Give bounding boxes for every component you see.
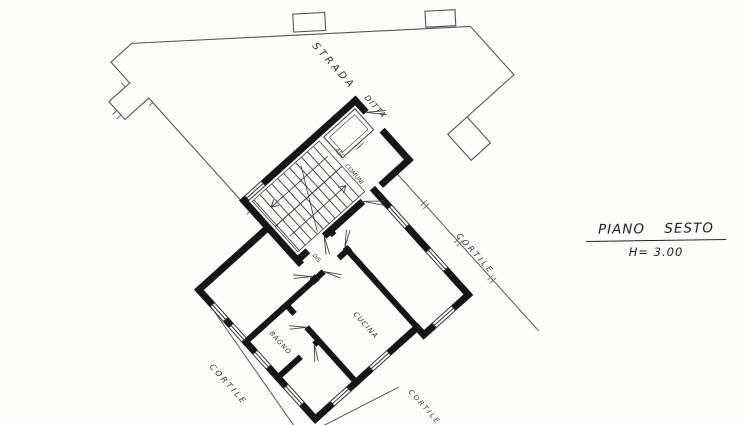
- hallway-label: DIS.: [311, 253, 323, 265]
- drawing-sheet: STRADA DITTA ASC. COMUNI DIS. BAGNO CUCI…: [0, 0, 750, 425]
- stair-arrow-up: [269, 153, 331, 210]
- ceiling-height-note: H= 3.00: [586, 245, 726, 259]
- elevator: [324, 109, 376, 160]
- courtyard-west-label: CORTILE: [208, 362, 249, 406]
- bathroom-label: BAGNO: [268, 329, 293, 356]
- facade-balcony-1: [293, 12, 326, 32]
- balcony-ticks: [96, 71, 250, 236]
- stair-core-walls: [239, 95, 431, 284]
- kitchen-label: CUCINA: [352, 310, 380, 340]
- title-block: PIANO SESTO H= 3.00: [586, 221, 726, 259]
- apartment-walls: [194, 153, 473, 425]
- courtyard-south-label: CORTILE: [407, 388, 442, 425]
- balcony-east: [448, 117, 491, 160]
- street-label: STRADA: [310, 41, 358, 92]
- facade-balcony-2: [425, 10, 456, 28]
- staircase: [252, 141, 364, 252]
- courtyard-east-label: CORTILE: [455, 231, 496, 275]
- courtyard-lines: [189, 144, 541, 425]
- plan-title: PIANO SESTO: [586, 220, 726, 242]
- owner-label: DITTA: [362, 93, 387, 120]
- floor-plan-drawing: STRADA DITTA ASC. COMUNI DIS. BAGNO CUCI…: [0, 0, 750, 425]
- interior-walls: [223, 226, 422, 424]
